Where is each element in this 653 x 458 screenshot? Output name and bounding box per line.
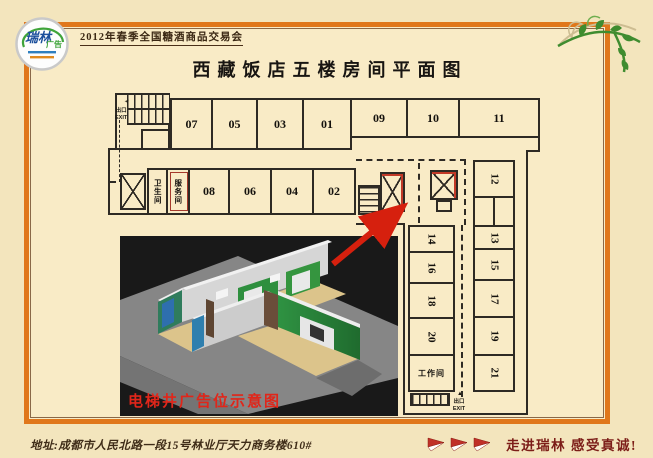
wing-column-right: 13 15 17 19 21 xyxy=(473,225,515,392)
wing-column-left: 14 16 18 20 工作间 xyxy=(408,225,455,392)
room-09: 09 xyxy=(352,100,408,136)
room-02: 02 xyxy=(314,170,354,213)
exit-arrow-bottom-icon: ▲ xyxy=(457,391,463,397)
poster: 瑞林 广告 2012年春季全国糖酒商品交易会 西藏饭店五楼房间平面图 出口EXI… xyxy=(0,0,653,458)
room-07: 07 xyxy=(172,100,213,148)
room-12: 12 xyxy=(473,160,515,198)
room-10: 10 xyxy=(408,100,460,136)
stairs-bottom xyxy=(410,393,450,406)
pennant-icon xyxy=(450,437,468,452)
slogan-text: 走进瑞林 感受真诚! xyxy=(506,434,637,454)
room-20: 20 xyxy=(410,319,453,356)
room-03: 03 xyxy=(258,100,304,148)
vine-decoration xyxy=(552,4,650,76)
top-room-row-left: 07 05 03 01 xyxy=(170,98,352,150)
exit-label-bottom: 出口EXIT xyxy=(448,399,470,412)
pennant-icon xyxy=(473,437,491,452)
company-logo: 瑞林 广告 xyxy=(15,17,69,71)
room-11: 11 xyxy=(460,100,538,136)
core-stairs xyxy=(358,185,380,215)
room-19: 19 xyxy=(475,318,513,356)
room-18: 18 xyxy=(410,284,453,319)
inset-caption: 电梯井广告位示意图 xyxy=(128,390,281,411)
core-dashed-mid xyxy=(418,163,420,223)
core-dashed-top xyxy=(356,159,466,161)
elevator-shaft-a xyxy=(380,172,405,212)
room-04: 04 xyxy=(272,170,314,213)
service-room: 服务间 xyxy=(168,170,190,213)
room-17: 17 xyxy=(475,281,513,318)
page-title: 西藏饭店五楼房间平面图 xyxy=(110,56,550,82)
core-dashed-right xyxy=(464,159,466,225)
room-14: 14 xyxy=(410,227,453,253)
workroom: 工作间 xyxy=(410,356,453,390)
restroom: 卫生间 xyxy=(149,170,168,213)
elevator-ad-3d-render: 电梯井广告位示意图 xyxy=(120,236,398,416)
stair-landing xyxy=(141,129,170,150)
room-01: 01 xyxy=(304,100,350,148)
room-21: 21 xyxy=(475,356,513,390)
elevator-lobby-box xyxy=(436,200,452,212)
slogan-row: 走进瑞林 感受真诚! xyxy=(427,434,637,454)
top-room-row-right: 09 10 11 xyxy=(350,98,540,138)
elevator-shaft-b xyxy=(430,170,458,200)
logo-sub-text: 广告 xyxy=(46,39,62,49)
pennant-icon xyxy=(427,437,445,452)
corridor-3d-scene xyxy=(120,236,398,416)
room-06: 06 xyxy=(230,170,272,213)
event-title: 2012年春季全国糖酒商品交易会 xyxy=(80,29,243,46)
exit-label-top: 出口EXIT xyxy=(115,108,127,121)
room-13: 13 xyxy=(475,227,513,250)
mid-room-row: 卫生间 服务间 08 06 04 02 xyxy=(147,168,356,215)
wing-corridor-dashed xyxy=(461,225,463,397)
address-text: 地址:成都市人民北路一段15号林业厅天力商务楼610# xyxy=(30,437,312,453)
stairs-hatch xyxy=(127,95,170,125)
room-16: 16 xyxy=(410,253,453,284)
room-05: 05 xyxy=(213,100,258,148)
shaft-left xyxy=(120,173,146,210)
room-08: 08 xyxy=(190,170,230,213)
room-15: 15 xyxy=(475,250,513,281)
